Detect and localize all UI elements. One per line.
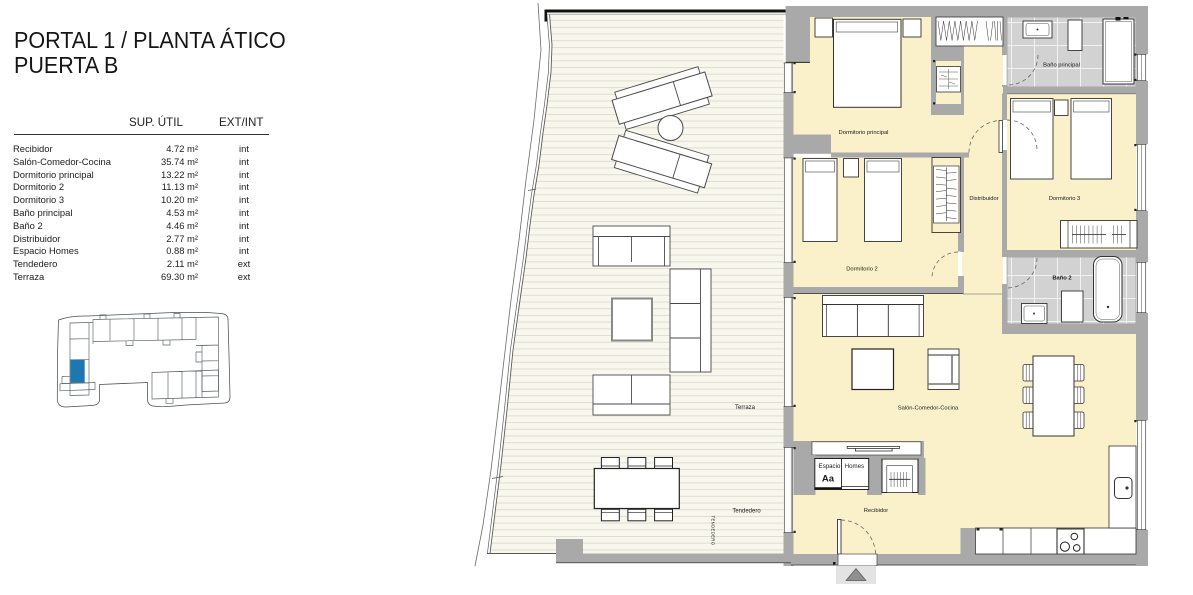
svg-text:Aa: Aa [822,474,835,485]
svg-text:Distribuidor: Distribuidor [969,196,998,202]
svg-text:Recibidor: Recibidor [864,508,889,514]
svg-text:Dormitorio principal: Dormitorio principal [839,130,889,136]
svg-text:Baño principal: Baño principal [1043,63,1080,69]
svg-text:Tendedero: Tendedero [732,509,761,515]
svg-text:Dormitorio 2: Dormitorio 2 [846,267,878,273]
svg-text:Espacio: Espacio [819,463,841,470]
svg-text:Terraza: Terraza [735,405,756,411]
svg-text:Homes: Homes [845,463,864,470]
svg-text:Baño 2: Baño 2 [1052,276,1071,282]
svg-text:Dormitorio 3: Dormitorio 3 [1049,196,1081,202]
svg-text:TENDEDERO: TENDEDERO [711,516,716,546]
svg-text:Salón-Comedor-Cocina: Salón-Comedor-Cocina [898,406,959,412]
